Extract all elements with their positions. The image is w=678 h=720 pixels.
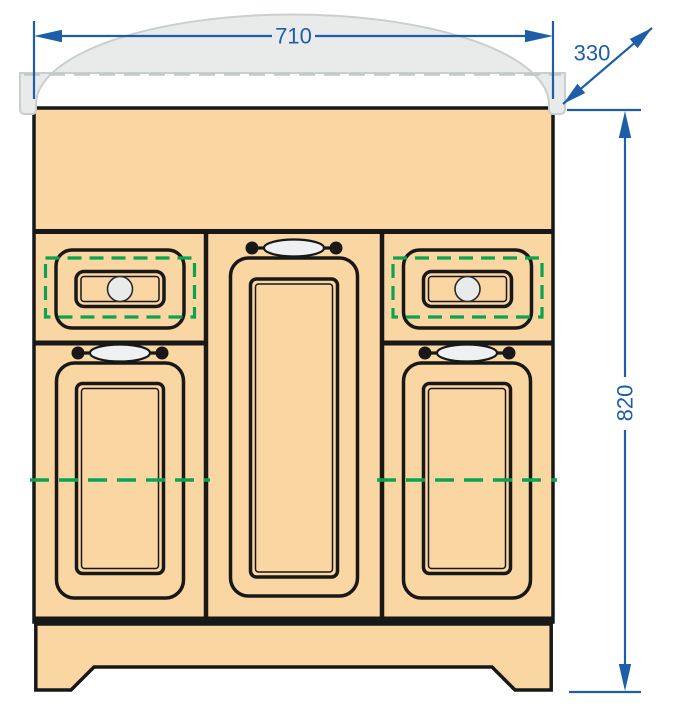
right-drawer-knob — [455, 277, 480, 302]
handle-end-dot — [72, 347, 85, 360]
handle-end-dot — [419, 347, 432, 360]
drawing-canvas: 710 330 820 — [0, 0, 678, 720]
cabinet-carcass — [34, 108, 553, 622]
technical-drawing: 710 330 820 — [0, 0, 678, 720]
dimension-depth-label: 330 — [574, 41, 611, 66]
handle-end-dot — [156, 347, 169, 360]
handle-grip-oval — [437, 345, 497, 362]
dimension-width-label: 710 — [275, 24, 312, 49]
handle-end-dot — [246, 242, 259, 255]
handle-end-dot — [330, 242, 343, 255]
handle-end-dot — [503, 347, 516, 360]
handle-grip-oval — [90, 345, 150, 362]
cabinet — [34, 108, 553, 690]
left-drawer-knob — [108, 277, 133, 302]
handle-grip-oval — [264, 240, 324, 257]
dimension-height-label: 820 — [613, 385, 638, 422]
